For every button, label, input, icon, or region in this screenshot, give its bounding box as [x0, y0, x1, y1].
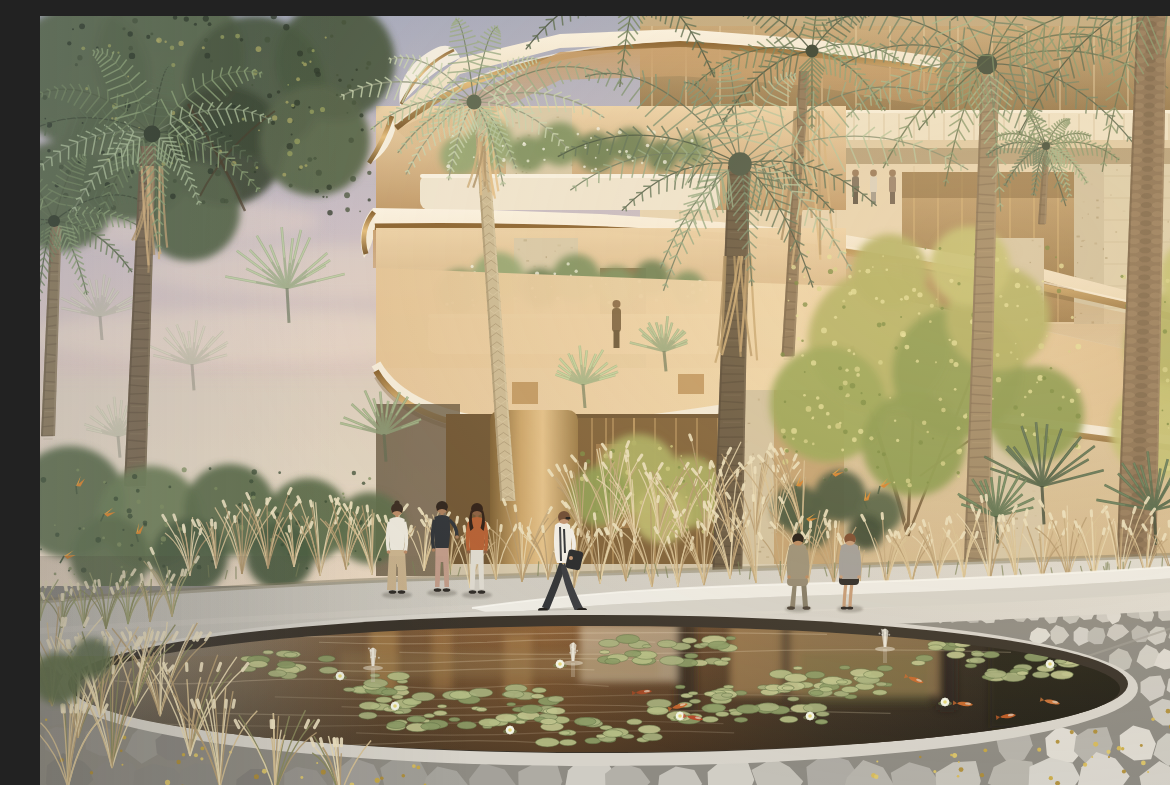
lighting-overlay [40, 16, 1170, 785]
rendering-image: Luxury residence courtyard rendering wit… [40, 16, 1170, 785]
foreground-shadow [40, 556, 470, 785]
courtyard-rendering: Luxury residence courtyard rendering wit… [40, 16, 1170, 785]
